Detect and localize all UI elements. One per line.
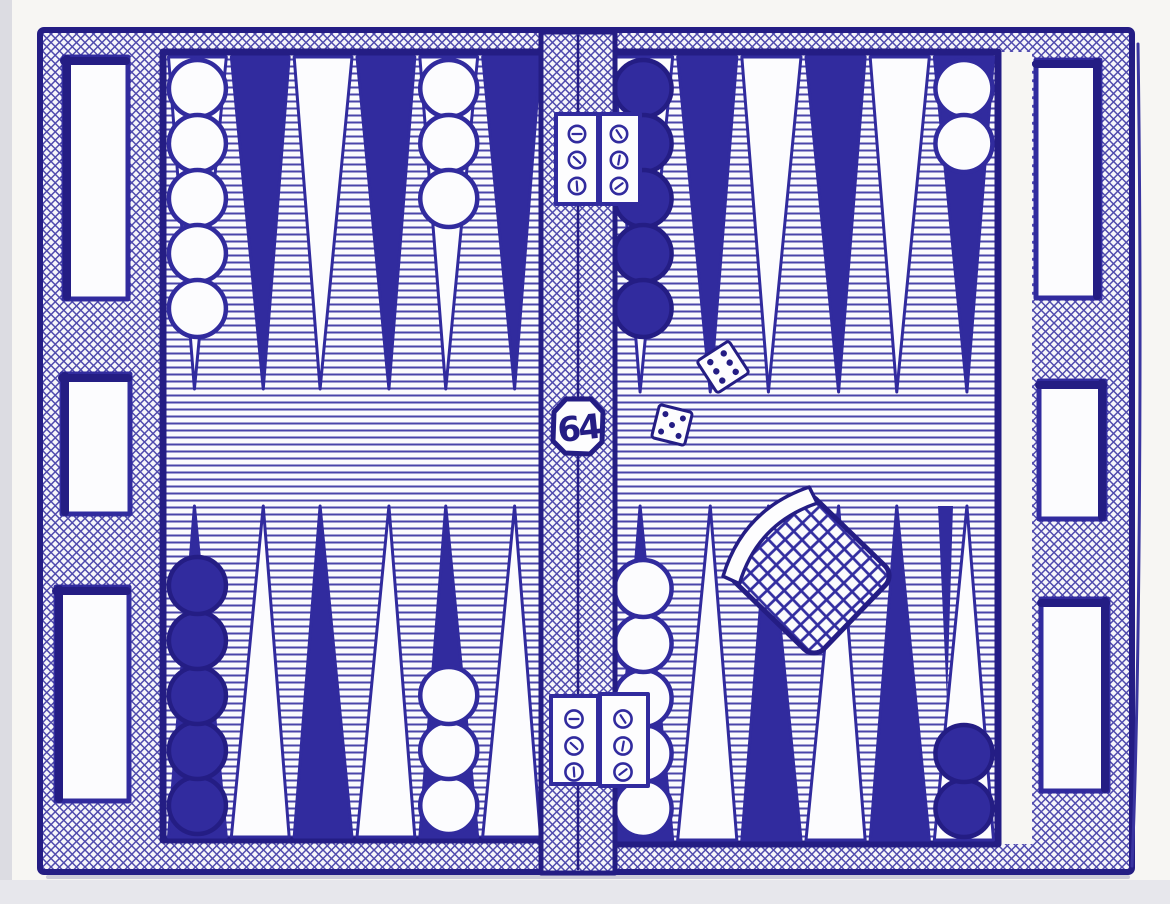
checker-dark xyxy=(615,280,672,337)
checker-dark xyxy=(169,667,226,724)
checker-white xyxy=(615,560,672,617)
checker-white xyxy=(420,170,477,227)
doubling-cube-value: 64 xyxy=(556,407,604,451)
checker-dark xyxy=(935,780,992,837)
case-slot xyxy=(1036,60,1100,298)
case-slot xyxy=(64,57,128,299)
paper-edge-left xyxy=(0,0,12,904)
die-2 xyxy=(651,404,692,445)
checker-dark xyxy=(615,60,672,117)
checker-dark xyxy=(169,777,226,834)
checker-white xyxy=(615,780,672,837)
board-right-margin xyxy=(1000,52,1032,844)
top-hinge xyxy=(556,114,640,204)
backgammon-pen-drawing: 64 xyxy=(0,0,1170,904)
checker-dark xyxy=(935,725,992,782)
checker-dark xyxy=(169,722,226,779)
board-right-bg xyxy=(608,52,998,844)
paper-edge-bottom xyxy=(0,880,1170,904)
screw-slot xyxy=(618,156,620,165)
checker-white xyxy=(169,225,226,282)
checker-white xyxy=(169,60,226,117)
case-slot xyxy=(1041,599,1108,791)
case-slot xyxy=(62,374,130,514)
board-right-half xyxy=(608,52,998,844)
scanned-drawing: 64 xyxy=(0,0,1170,904)
checker-white xyxy=(169,170,226,227)
checker-white xyxy=(169,280,226,337)
checker-dark xyxy=(169,612,226,669)
board-left-half xyxy=(163,52,543,840)
checker-white xyxy=(420,115,477,172)
checker-white xyxy=(420,722,477,779)
case-slot xyxy=(1039,381,1105,519)
case-slot xyxy=(56,587,129,801)
checker-dark xyxy=(615,225,672,282)
checker-white xyxy=(935,60,992,117)
checker-white xyxy=(420,60,477,117)
checker-white xyxy=(420,667,477,724)
bottom-hinge xyxy=(551,694,648,786)
checker-white xyxy=(615,615,672,672)
checker-white xyxy=(169,115,226,172)
screw-slot xyxy=(574,768,575,777)
doubling-cube: 64 xyxy=(553,399,603,454)
checker-white xyxy=(420,777,477,834)
checker-white xyxy=(935,115,992,172)
screw-slot xyxy=(577,182,578,191)
board-left-bg xyxy=(163,52,543,840)
screw-slot xyxy=(622,742,624,751)
checker-dark xyxy=(169,557,226,614)
